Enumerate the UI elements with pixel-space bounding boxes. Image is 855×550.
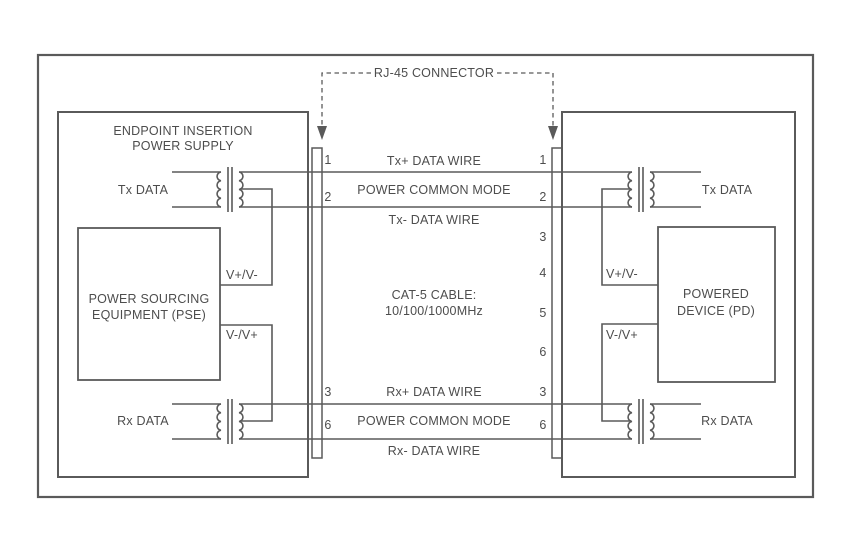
endpoint-title-line2: POWER SUPPLY (132, 138, 234, 154)
cable-name-line2: 10/100/1000MHz (385, 303, 483, 319)
outer-border (38, 55, 813, 497)
tx-common-mode-label: POWER COMMON MODE (357, 182, 510, 198)
pin-number-left-3: 3 (324, 384, 331, 400)
pin-number-right-2: 2 (539, 189, 546, 205)
pin-number-right-4: 4 (539, 265, 546, 281)
rx-data-label-right: Rx DATA (701, 413, 753, 429)
pin-number-right-6: 6 (539, 344, 546, 360)
pd-label-line2: DEVICE (PD) (677, 303, 755, 319)
tx-minus-wire-label: Tx- DATA WIRE (388, 212, 479, 228)
rj45-callout-leaders (322, 73, 553, 127)
callout-leader-right (497, 73, 553, 127)
callout-leader-left (322, 73, 371, 127)
rx-plus-wire-label: Rx+ DATA WIRE (386, 384, 482, 400)
vplus-label-left: V+/V- (226, 267, 258, 283)
rx-minus-wire-label: Rx- DATA WIRE (388, 443, 480, 459)
pse-label-line2: EQUIPMENT (PSE) (92, 307, 206, 323)
rx-common-mode-label: POWER COMMON MODE (357, 413, 510, 429)
pse-label-line1: POWER SOURCING (89, 291, 210, 307)
powered-unit-box (562, 112, 795, 477)
pin-number-right-1: 1 (539, 152, 546, 168)
rj45-connector-label: RJ-45 CONNECTOR (374, 65, 494, 81)
vplus-label-right: V+/V- (606, 266, 638, 282)
rx-data-label-left: Rx DATA (117, 413, 169, 429)
rj45-bar-right (552, 148, 562, 458)
pin-number-right-3: 3 (539, 229, 546, 245)
rj45-bar-left (312, 148, 322, 458)
tx-plus-wire-label: Tx+ DATA WIRE (387, 153, 481, 169)
endpoint-title-line1: ENDPOINT INSERTION (113, 123, 252, 139)
down-arrow-icon-right (548, 126, 558, 140)
pd-label-line1: POWERED (683, 286, 749, 302)
diagram-line-art (0, 0, 855, 550)
tx-data-label-right: Tx DATA (702, 182, 752, 198)
pin-number-left-2: 2 (324, 189, 331, 205)
pin-number-right-3b: 3 (539, 384, 546, 400)
poe-diagram: RJ-45 CONNECTOR ENDPOINT INSERTION POWER… (0, 0, 855, 550)
tx-data-label-left: Tx DATA (118, 182, 168, 198)
down-arrow-icon-left (317, 126, 327, 140)
pin-number-left-1: 1 (324, 152, 331, 168)
pin-number-right-5: 5 (539, 305, 546, 321)
vminus-label-left: V-/V+ (226, 327, 258, 343)
pin-number-left-6: 6 (324, 417, 331, 433)
cable-name-line1: CAT-5 CABLE: (392, 287, 477, 303)
vminus-label-right: V-/V+ (606, 327, 638, 343)
pin-number-right-6b: 6 (539, 417, 546, 433)
